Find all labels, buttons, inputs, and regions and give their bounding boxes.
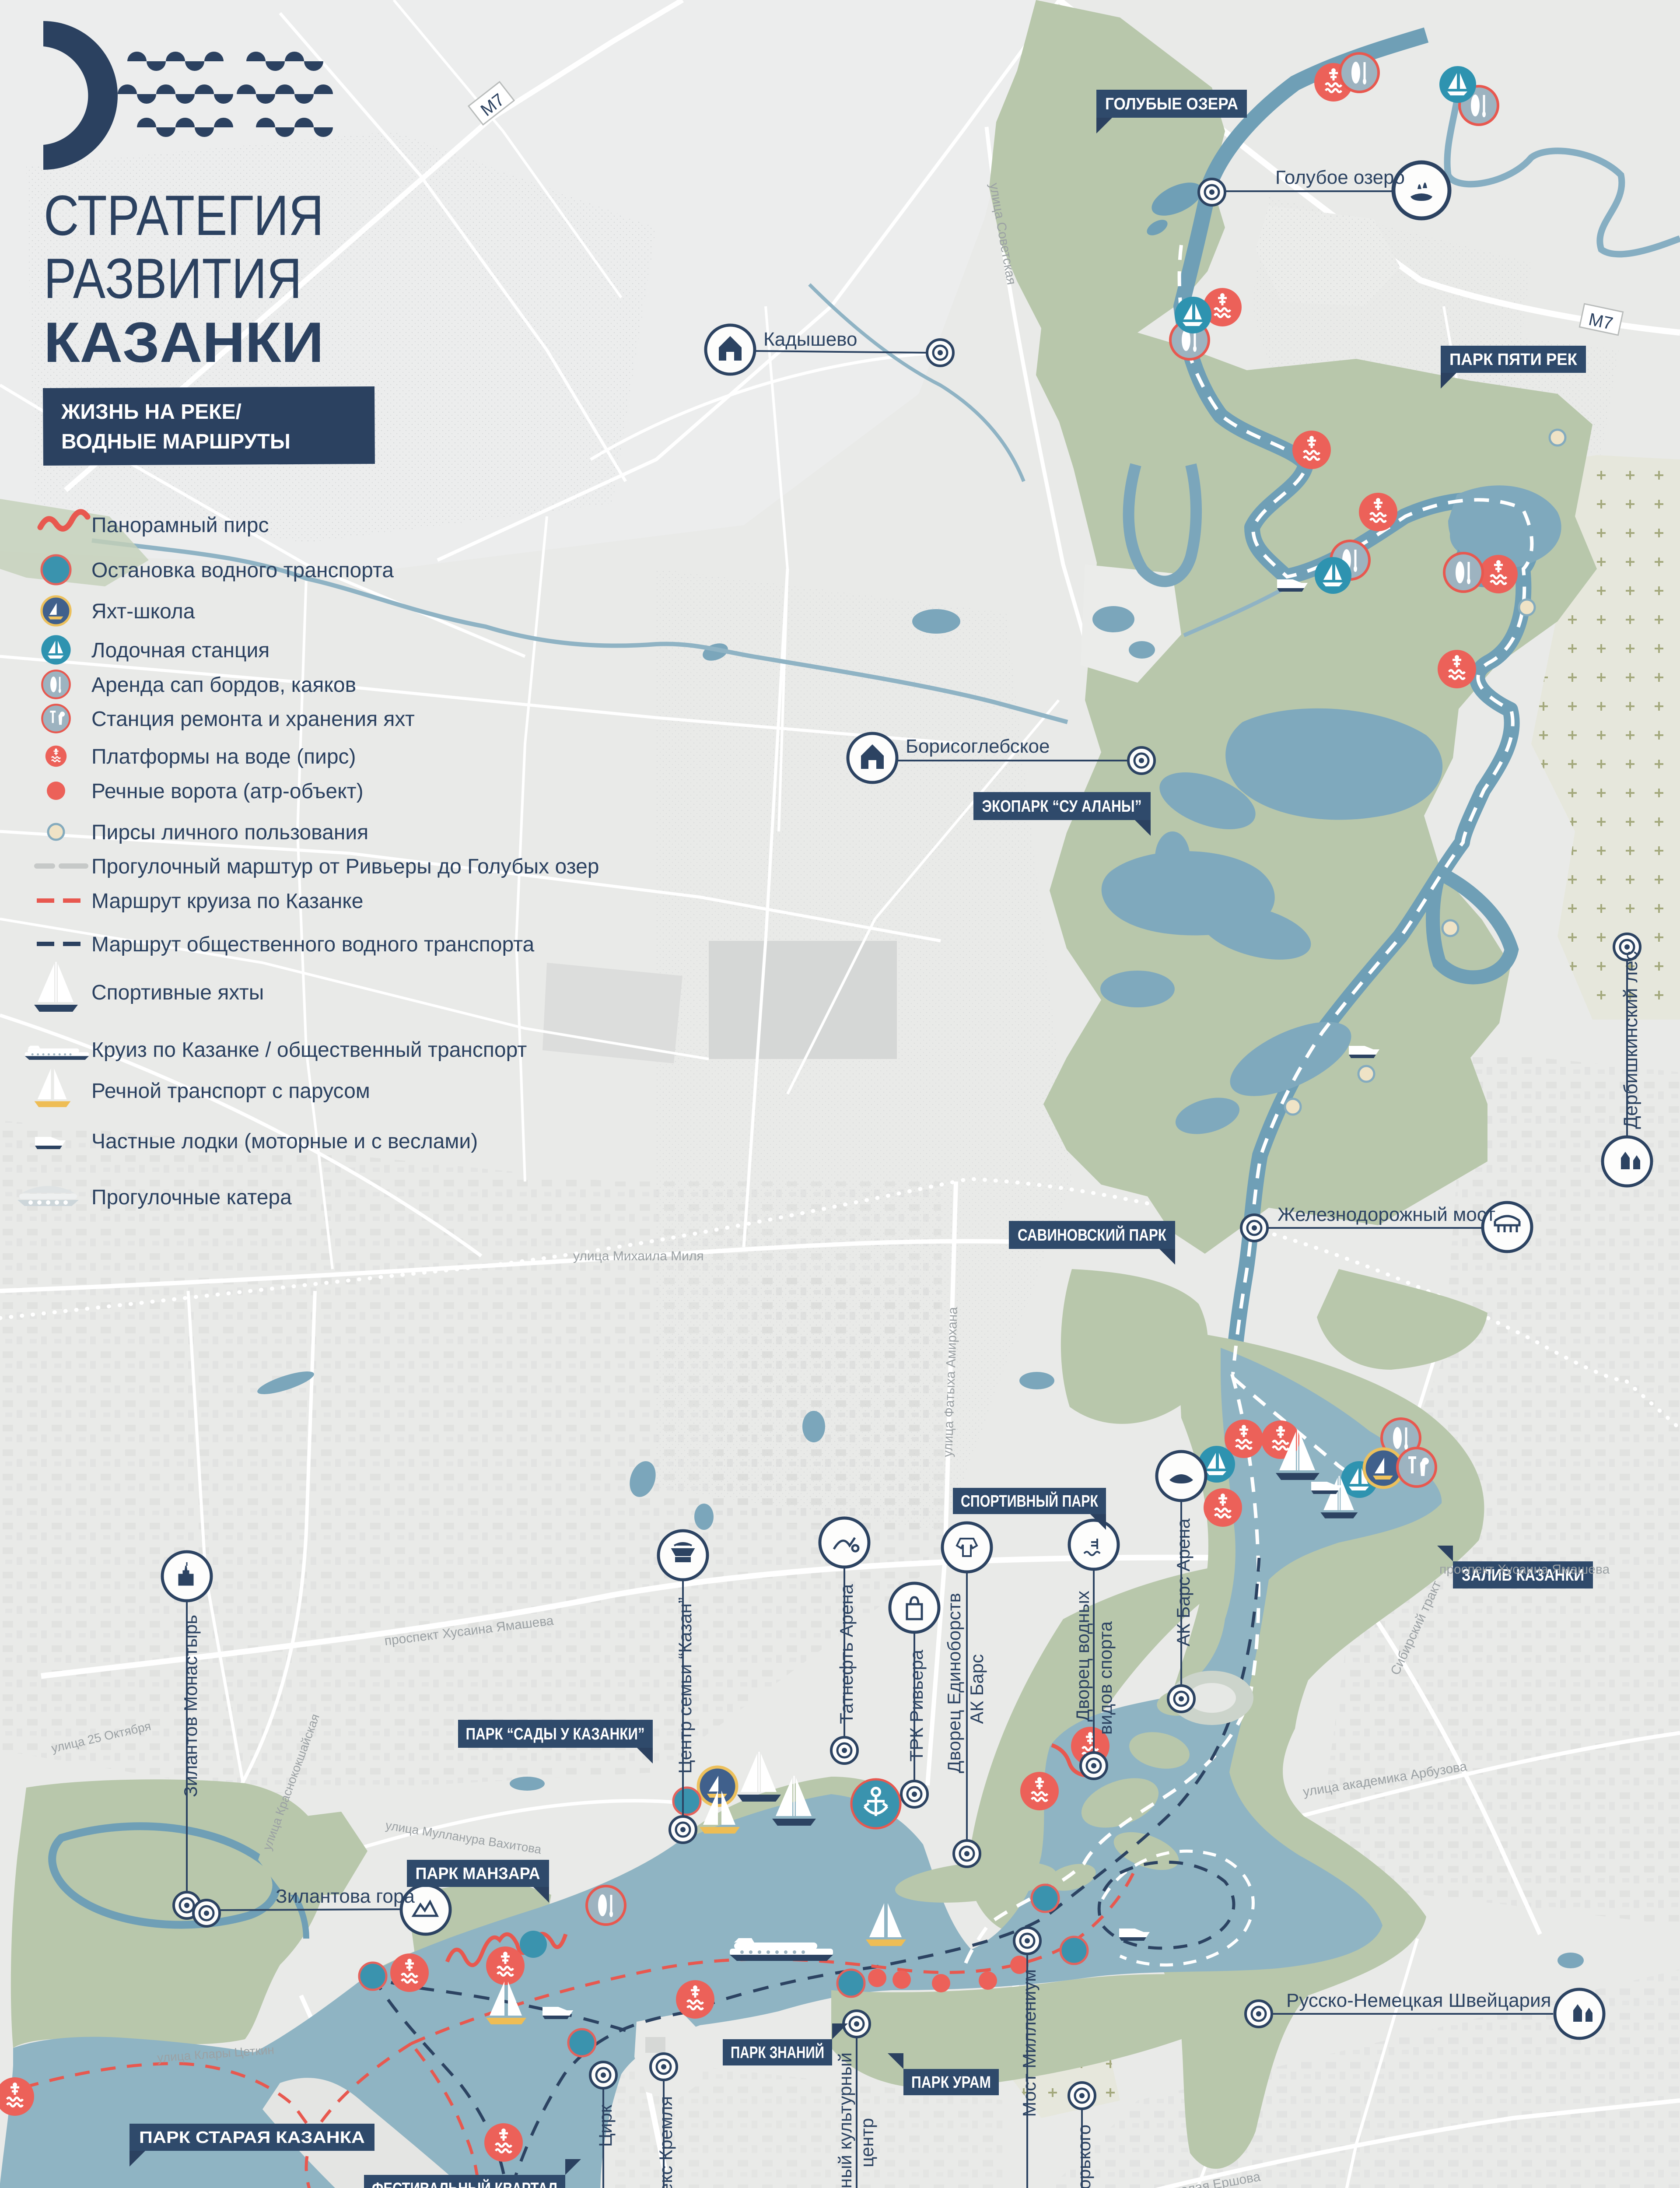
svg-text:Маршрут круиза по Казанке: Маршрут круиза по Казанке xyxy=(91,890,364,913)
svg-text:Цирк: Цирк xyxy=(595,2104,616,2147)
svg-text:улица Михаила Миля: улица Михаила Миля xyxy=(573,1249,704,1263)
svg-text:ПАРК МАНЗАРА: ПАРК МАНЗАРА xyxy=(416,1865,540,1883)
svg-text:Остановка водного транспорта: Остановка водного транспорта xyxy=(91,559,394,582)
svg-text:Голубое озеро: Голубое озеро xyxy=(1275,167,1405,188)
svg-text:Татнефть Арена: Татнефть Арена xyxy=(836,1584,857,1724)
svg-text:Дербишкинский лес: Дербишкинский лес xyxy=(1620,951,1641,1129)
svg-text:Железнодорожный мост: Железнодорожный мост xyxy=(1277,1204,1495,1225)
svg-text:ГОЛУБЫЕ ОЗЕРА: ГОЛУБЫЕ ОЗЕРА xyxy=(1105,95,1238,113)
svg-text:РАЗВИТИЯ: РАЗВИТИЯ xyxy=(44,246,302,310)
svg-text:центр: центр xyxy=(857,2118,877,2167)
svg-text:Дворец водных: Дворец водных xyxy=(1072,1591,1093,1722)
svg-text:Яхт-школа: Яхт-школа xyxy=(91,600,195,623)
svg-text:Комплекс Кремля: Комплекс Кремля xyxy=(655,2096,676,2188)
svg-text:Лодочная станция: Лодочная станция xyxy=(91,639,269,662)
svg-text:ТРК Ривьера: ТРК Ривьера xyxy=(906,1649,927,1761)
svg-text:Дворец Единоборств: Дворец Единоборств xyxy=(944,1593,964,1773)
svg-text:Русско-Немецкая Швейцария: Русско-Немецкая Швейцария xyxy=(1286,1990,1551,2011)
svg-text:Прогулочные катера: Прогулочные катера xyxy=(91,1186,292,1209)
svg-text:САВИНОВСКИЙ ПАРК: САВИНОВСКИЙ ПАРК xyxy=(1018,1225,1167,1245)
svg-text:Мост Миллениум: Мост Миллениум xyxy=(1019,1969,1039,2117)
svg-text:Национальный культурный: Национальный культурный xyxy=(835,2052,855,2188)
svg-text:Пирсы личного пользования: Пирсы личного пользования xyxy=(91,821,368,844)
svg-text:Речной транспорт с парусом: Речной транспорт с парусом xyxy=(91,1080,370,1103)
svg-text:АК Барс Арена: АК Барс Арена xyxy=(1173,1518,1193,1646)
svg-text:Спортивные яхты: Спортивные яхты xyxy=(91,981,264,1004)
svg-text:СТРАТЕГИЯ: СТРАТЕГИЯ xyxy=(44,183,324,247)
svg-text:ПАРК ЗНАНИЙ: ПАРК ЗНАНИЙ xyxy=(731,2042,824,2062)
svg-text:Частные лодки (моторные и с ве: Частные лодки (моторные и с веслами) xyxy=(91,1130,478,1153)
svg-text:ПАРК УРАМ: ПАРК УРАМ xyxy=(911,2073,991,2092)
svg-text:ВОДНЫЕ МАРШРУТЫ: ВОДНЫЕ МАРШРУТЫ xyxy=(61,430,290,453)
svg-text:видов спорта: видов спорта xyxy=(1095,1621,1116,1735)
svg-text:Зилантова гора: Зилантова гора xyxy=(276,1886,415,1907)
svg-text:Центр семьи “Казан”: Центр семьи “Казан” xyxy=(675,1597,695,1774)
svg-text:Круиз по Казанке / общественны: Круиз по Казанке / общественный транспор… xyxy=(91,1038,527,1062)
svg-text:Речные ворота (атр-объект): Речные ворота (атр-объект) xyxy=(91,780,364,803)
svg-text:АК Барс: АК Барс xyxy=(966,1654,987,1724)
svg-text:ПАРК ПЯТИ РЕК: ПАРК ПЯТИ РЕК xyxy=(1449,351,1578,369)
svg-text:Аренда сап бордов, каяков: Аренда сап бордов, каяков xyxy=(91,673,356,697)
svg-text:Прогулочный марштур от Ривьеры: Прогулочный марштур от Ривьеры до Голубы… xyxy=(91,855,599,878)
svg-text:Парк Горького: Парк Горького xyxy=(1074,2125,1094,2188)
svg-text:ЭКОПАРК “СУ АЛАНЫ”: ЭКОПАРК “СУ АЛАНЫ” xyxy=(982,797,1142,816)
svg-text:СПОРТИВНЫЙ ПАРК: СПОРТИВНЫЙ ПАРК xyxy=(961,1491,1099,1511)
svg-text:Платформы на воде (пирс): Платформы на воде (пирс) xyxy=(91,745,356,768)
svg-text:проспект Хусаина Ямашева: проспект Хусаина Ямашева xyxy=(1439,1562,1610,1577)
svg-text:Станция ремонта и хранения яхт: Станция ремонта и хранения яхт xyxy=(91,708,415,731)
svg-text:ЖИЗНЬ НА РЕКЕ/: ЖИЗНЬ НА РЕКЕ/ xyxy=(61,400,241,424)
svg-text:ПАРК “САДЫ У КАЗАНКИ”: ПАРК “САДЫ У КАЗАНКИ” xyxy=(466,1725,645,1743)
svg-text:ПАРК СТАРАЯ КАЗАНКА: ПАРК СТАРАЯ КАЗАНКА xyxy=(139,2128,365,2147)
svg-text:ФЕСТИВАЛЬНЫЙ КВАРТАЛ: ФЕСТИВАЛЬНЫЙ КВАРТАЛ xyxy=(372,2178,557,2188)
svg-text:Зилантов Монастырь: Зилантов Монастырь xyxy=(180,1615,201,1797)
svg-text:Панорамный пирс: Панорамный пирс xyxy=(91,514,269,537)
svg-text:Борисоглебское: Борисоглебское xyxy=(906,736,1050,757)
svg-text:Кадышево: Кадышево xyxy=(763,329,857,350)
svg-text:КАЗАНКИ: КАЗАНКИ xyxy=(44,310,324,374)
svg-text:Маршрут общественного водного: Маршрут общественного водного транспорта xyxy=(91,933,535,956)
